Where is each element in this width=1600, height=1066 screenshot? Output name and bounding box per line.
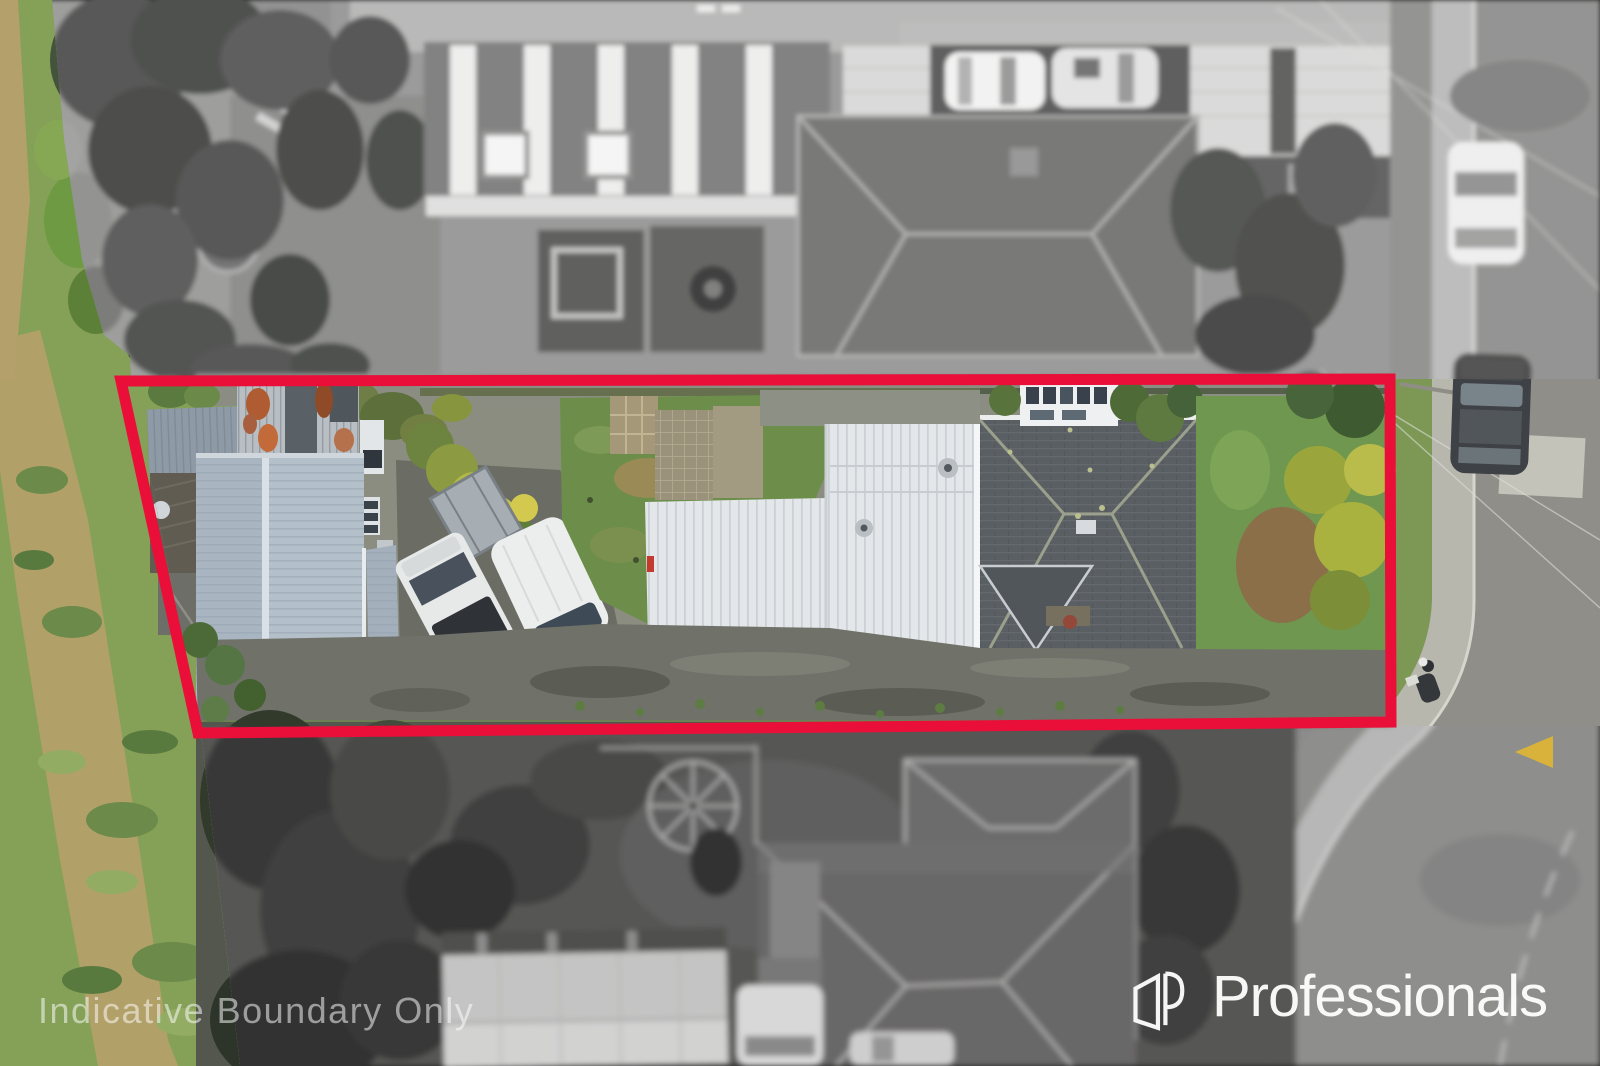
aerial-scene [0, 0, 1600, 1066]
brand-logo: Professionals [1128, 962, 1547, 1032]
watermark-label: Indicative Boundary Only [38, 990, 474, 1032]
aerial-property-photo: Indicative Boundary Only Professionals [0, 0, 1600, 1066]
brand-name-label: Professionals [1212, 968, 1547, 1026]
professionals-p-logo-icon [1128, 962, 1186, 1032]
